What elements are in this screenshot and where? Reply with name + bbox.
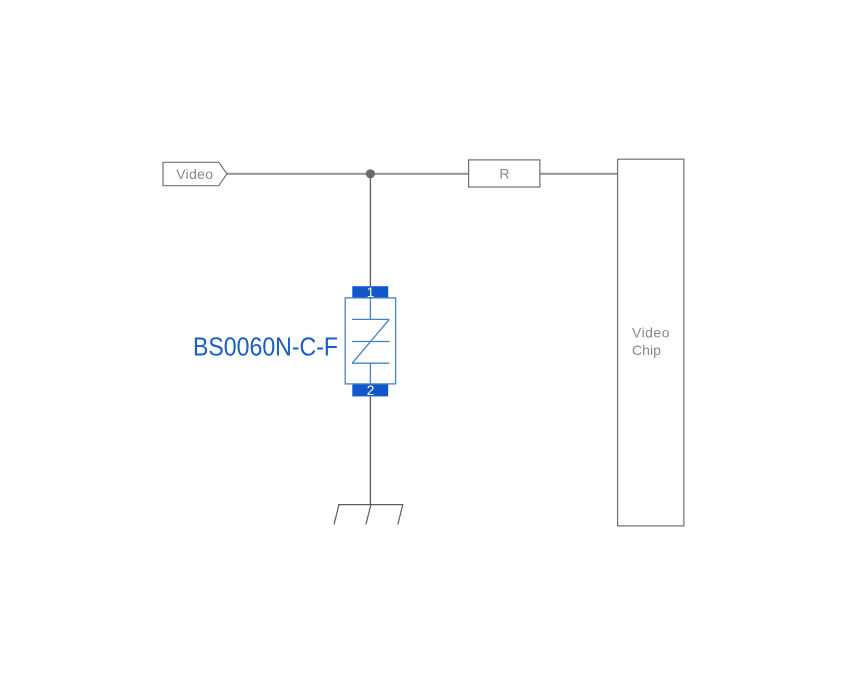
svg-text:Chip: Chip <box>632 342 661 358</box>
svg-text:R: R <box>499 166 509 182</box>
svg-text:Video: Video <box>632 325 670 341</box>
svg-text:1: 1 <box>367 285 375 300</box>
svg-text:2: 2 <box>367 383 375 398</box>
svg-text:BS0060N-C-F: BS0060N-C-F <box>193 331 338 361</box>
svg-text:Video: Video <box>176 166 213 182</box>
